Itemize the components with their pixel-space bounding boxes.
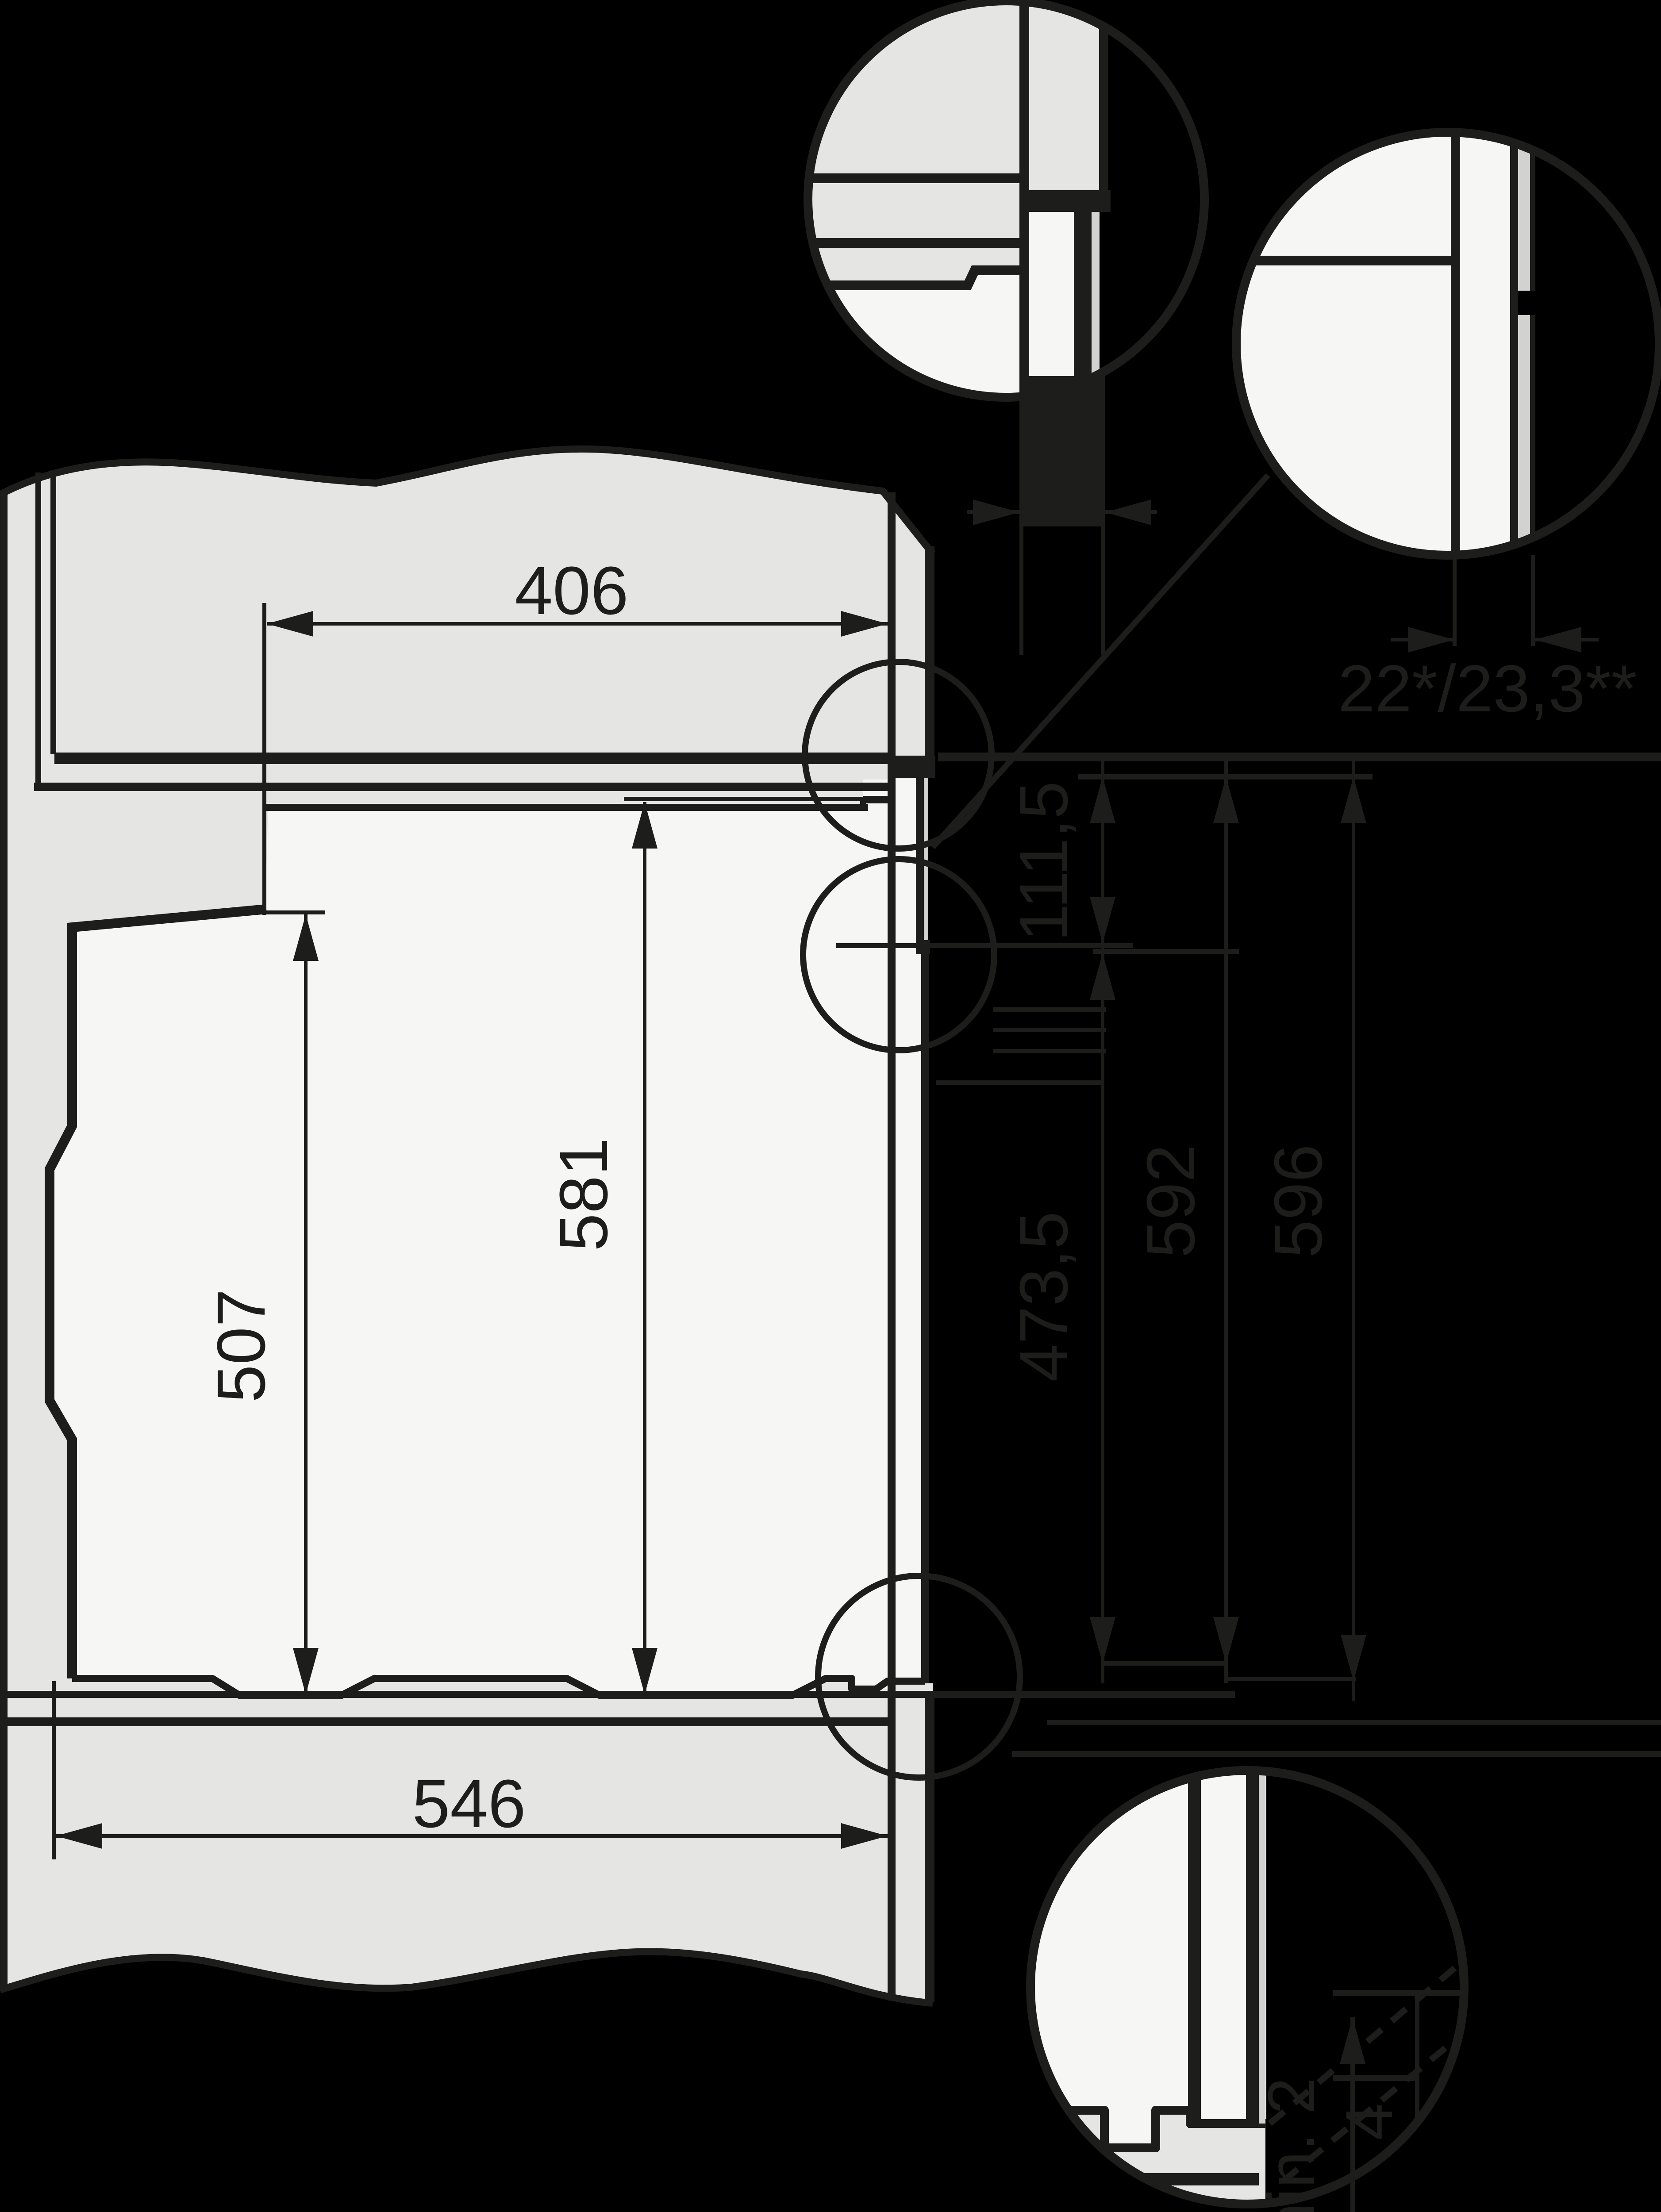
svg-text:22*/23,3**: 22*/23,3** xyxy=(1338,651,1637,726)
svg-text:546: 546 xyxy=(412,1766,526,1842)
svg-text:581: 581 xyxy=(546,1138,622,1252)
svg-text:111,5: 111,5 xyxy=(1006,781,1082,942)
svg-text:min. 2: min. 2 xyxy=(1254,2078,1328,2212)
svg-text:406: 406 xyxy=(515,553,629,629)
svg-text:592: 592 xyxy=(1133,1144,1209,1258)
svg-text:4: 4 xyxy=(1332,2103,1406,2140)
svg-text:473,5: 473,5 xyxy=(1006,1211,1082,1382)
svg-text:507: 507 xyxy=(203,1289,279,1403)
svg-text:1,5: 1,5 xyxy=(1018,441,1073,510)
svg-text:596: 596 xyxy=(1260,1144,1336,1258)
